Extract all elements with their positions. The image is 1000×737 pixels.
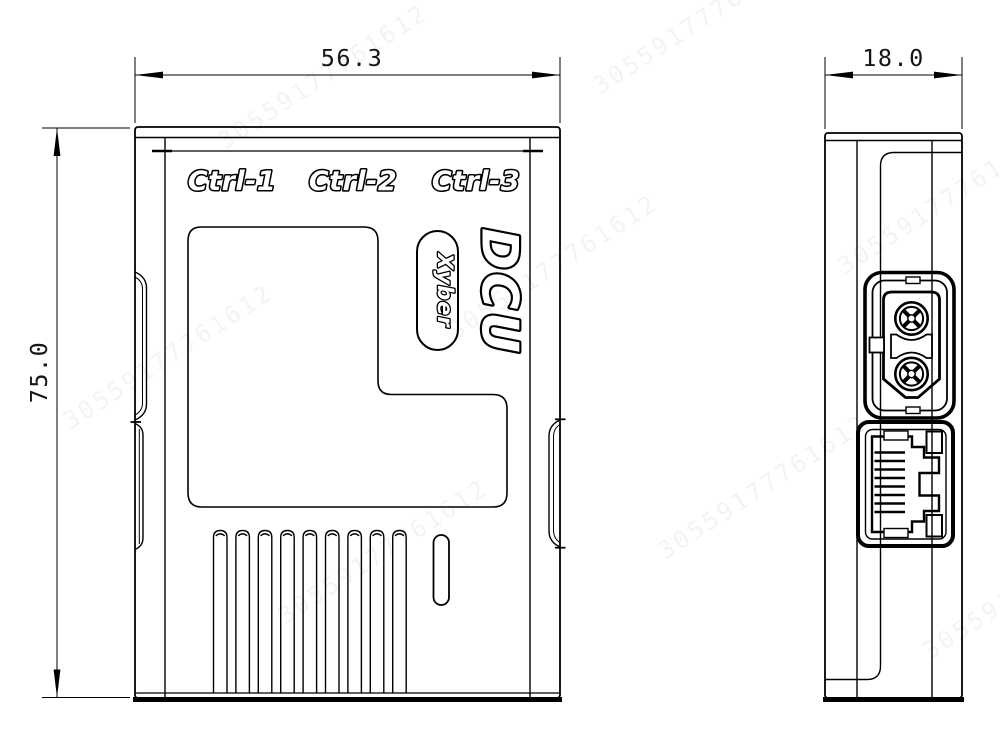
vent-slot xyxy=(236,531,250,694)
dimension-side-depth: 18.0 xyxy=(825,44,962,129)
vent-slot xyxy=(214,531,228,694)
ethernet-shield-tab-bottom xyxy=(927,515,943,537)
watermark-text: 30559177761612 xyxy=(833,123,1000,280)
left-clip-upper-inner xyxy=(135,277,143,415)
dimension-text: 18.0 xyxy=(862,44,925,72)
right-edge-clip xyxy=(549,419,566,547)
dimension-arrow xyxy=(54,128,61,156)
watermark-text: 30559177761612 xyxy=(588,0,808,100)
left-clip-upper xyxy=(135,272,147,420)
port-label-ctrl3: Ctrl-3 xyxy=(432,166,520,197)
vent-slot xyxy=(326,531,340,694)
ethernet-mount-tab-bottom xyxy=(884,529,908,538)
ethernet-mount-tab-top xyxy=(884,431,908,440)
power-connector-tab-bottom xyxy=(906,407,920,414)
dimension-arrow xyxy=(135,72,163,79)
right-clip-inner xyxy=(554,425,561,543)
ethernet-shield-tab-top xyxy=(927,432,943,454)
polarity-key-bowtie xyxy=(891,335,932,359)
dimension-arrow xyxy=(825,72,853,79)
ethernet-pins xyxy=(875,453,906,513)
right-clip xyxy=(549,420,560,547)
ethernet-bezel-inner xyxy=(866,430,947,540)
power-terminal-top xyxy=(895,302,927,334)
ethernet-port-rj45 xyxy=(858,422,953,546)
dimension-arrow xyxy=(532,72,560,79)
terminal-center xyxy=(908,315,915,322)
dimension-arrow xyxy=(54,670,61,698)
dimension-arrow xyxy=(934,72,962,79)
label-panel-outline xyxy=(188,227,507,507)
watermark-text: 30559177761612 xyxy=(273,473,493,630)
port-label-ctrl1: Ctrl-1 xyxy=(188,166,276,197)
front-view: Ctrl-1 Ctrl-2 Ctrl-3 DCU Xyber xyxy=(131,127,566,700)
technical-drawing-canvas: 30559177761612 30559177761612 3055917776… xyxy=(0,0,1000,737)
port-label-ctrl2: Ctrl-2 xyxy=(309,166,397,197)
watermark-text: 30559177761612 xyxy=(653,408,873,565)
power-connector-key-notch xyxy=(870,338,885,353)
terminal-center xyxy=(908,370,915,377)
product-name-label: DCU xyxy=(471,228,529,356)
dimension-text: 75.0 xyxy=(25,341,53,404)
brand-name-label: Xyber xyxy=(433,251,457,328)
power-terminal-bottom xyxy=(895,358,927,390)
watermark-text: 30559177761612 xyxy=(58,278,278,435)
watermark-text: 30559177761612 xyxy=(918,508,1000,665)
ethernet-jack-outline xyxy=(872,437,939,533)
reset-slot xyxy=(434,535,450,605)
left-edge-clips xyxy=(131,272,147,550)
dcu-enclosure-drawing: 30559177761612 30559177761612 3055917776… xyxy=(0,0,1000,737)
vent-slot xyxy=(258,531,272,694)
power-connector-xt30 xyxy=(865,273,954,419)
dimension-front-width: 56.3 xyxy=(135,44,560,123)
watermark-text: 30559177761612 xyxy=(213,0,433,155)
power-connector-tab-top xyxy=(906,277,920,284)
dimension-text: 56.3 xyxy=(321,44,384,72)
